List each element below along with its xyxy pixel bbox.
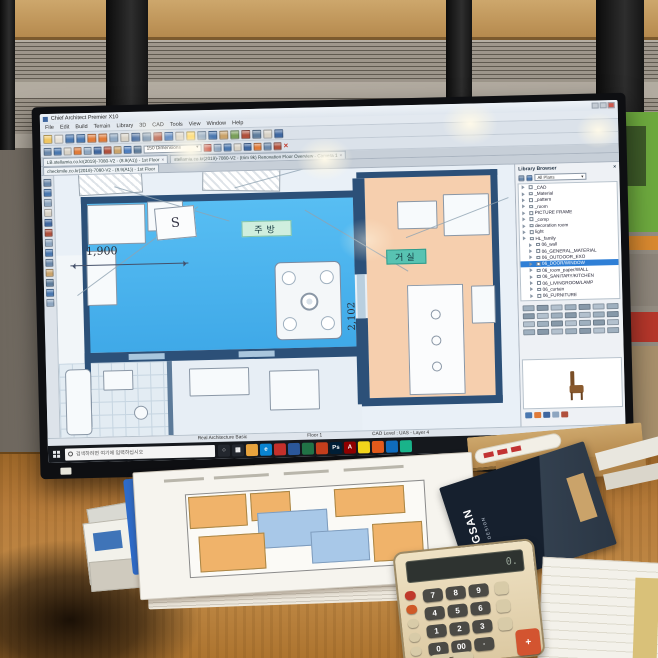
calc-digit-key[interactable]: 3 (472, 619, 493, 634)
toolbar-icon[interactable] (153, 132, 162, 141)
library-item-label: light (535, 229, 544, 234)
taskbar-app-icon[interactable] (288, 442, 300, 454)
calc-plus-key[interactable]: + (515, 628, 542, 656)
taskbar-icons: ○▦ePsA (218, 440, 412, 457)
menu-item[interactable]: File (45, 125, 54, 131)
library-grid-icon[interactable] (607, 327, 619, 333)
library-item-label: _pattern (534, 197, 551, 202)
menu-item[interactable]: Help (232, 120, 243, 126)
toolbar-icon[interactable] (104, 146, 112, 154)
library-preview-pane (522, 357, 623, 409)
tool-icon[interactable] (45, 249, 53, 257)
library-grid-icon[interactable] (523, 313, 535, 319)
menu-item[interactable]: 3D (139, 123, 146, 129)
menu-item[interactable]: View (189, 121, 201, 127)
wall (352, 178, 366, 274)
expand-arrow-icon[interactable] (522, 192, 527, 196)
taskbar-app-icon[interactable]: A (344, 441, 356, 453)
checkbox[interactable] (536, 249, 540, 253)
library-grid-icon[interactable] (523, 329, 535, 335)
toolbar-icon[interactable] (197, 131, 206, 140)
checkbox[interactable] (529, 211, 533, 215)
expand-arrow-icon[interactable] (522, 198, 527, 202)
calc-digit-key[interactable]: 9 (468, 583, 489, 598)
calculator-keypad: 789456123000· (422, 583, 495, 658)
door-opening (357, 274, 366, 318)
library-icon-grid (518, 300, 623, 359)
taskbar-app-icon[interactable] (372, 440, 384, 452)
library-grid-icon[interactable] (579, 328, 591, 334)
screen: Chief Architect Premier X10 FileEditBuil… (40, 100, 626, 463)
expand-arrow-icon[interactable] (530, 294, 535, 298)
toolbar-icon[interactable] (223, 143, 231, 151)
calc-digit-key[interactable]: 4 (424, 606, 445, 621)
delete-tool-icon[interactable]: × (283, 142, 288, 150)
library-grid-icon[interactable] (523, 321, 535, 327)
library-grid-icon[interactable] (523, 305, 535, 311)
place-setting (320, 270, 334, 284)
start-button[interactable] (51, 449, 62, 460)
library-footer-icon[interactable] (543, 411, 550, 417)
toolbar-icon[interactable] (219, 130, 228, 139)
calc-memory-key[interactable] (409, 632, 421, 642)
library-grid-icon[interactable] (537, 329, 549, 335)
toolbar-icon[interactable] (273, 142, 281, 150)
kitchen-room-label: 주방 (241, 220, 291, 237)
expand-arrow-icon[interactable] (523, 224, 528, 228)
window-opening (239, 350, 275, 357)
tool-icon[interactable] (43, 179, 51, 187)
library-grid-icon[interactable] (565, 328, 577, 334)
yellow-notepad (633, 578, 658, 658)
windows-logo-icon (53, 451, 60, 458)
library-grid-icon[interactable] (565, 320, 577, 326)
toolbar-icon[interactable] (120, 132, 129, 141)
calc-memory-key[interactable] (407, 618, 419, 628)
library-tree: _CAD _Material (518, 181, 621, 301)
checkbox[interactable] (530, 237, 534, 241)
checkbox[interactable] (529, 186, 533, 190)
status-floor: Floor 1 (307, 433, 322, 438)
library-item-label: 06_OUTDOOR_EXO (542, 254, 586, 260)
expand-arrow-icon[interactable] (523, 230, 528, 234)
print-text-line (214, 473, 269, 479)
checkbox[interactable] (529, 205, 533, 209)
calc-op-key[interactable] (498, 617, 513, 631)
s-marker: S (154, 205, 197, 241)
library-grid-icon[interactable] (537, 313, 549, 319)
cabinet (87, 204, 146, 245)
expand-arrow-icon[interactable] (530, 275, 535, 279)
monitor: Chief Architect Premier X10 FileEditBuil… (32, 93, 635, 479)
toolbar-icon[interactable] (64, 147, 72, 155)
tool-icon[interactable] (45, 259, 53, 267)
toolbar-icon[interactable] (84, 146, 92, 154)
toolbar-icon[interactable] (208, 130, 217, 139)
toolbar-icon[interactable] (54, 134, 63, 143)
tool-icon[interactable] (46, 299, 54, 307)
mini-room (188, 494, 248, 529)
app-icon (43, 116, 48, 121)
window-opening (129, 353, 165, 360)
library-item-label: 06_curtain (543, 286, 565, 292)
app-glyph: ▦ (235, 446, 241, 453)
toolbar-icon[interactable] (213, 143, 221, 151)
wall-stripe-band (0, 42, 658, 82)
taskbar-app-icon[interactable]: ○ (218, 444, 230, 456)
library-tool-icon[interactable] (526, 175, 532, 181)
wood-shelf (0, 0, 658, 40)
toolbar-icon[interactable] (263, 142, 271, 150)
toolbar-icon[interactable] (142, 132, 151, 141)
app-glyph: A (348, 444, 352, 450)
library-footer-icon[interactable] (561, 411, 568, 417)
library-browser-panel: Library Browser × All Plans▾ (514, 162, 625, 426)
library-item-label: decoration room (535, 222, 568, 228)
toolbar-icon[interactable] (76, 134, 85, 143)
app-glyph: Ps (332, 444, 339, 450)
tool-icon[interactable] (45, 229, 53, 237)
toolbar-icon[interactable] (65, 134, 74, 143)
library-grid-icon[interactable] (607, 319, 619, 325)
speaker-circle (432, 361, 442, 371)
speaker-circle (431, 309, 441, 319)
toolbar-icon[interactable] (252, 129, 261, 138)
chair-thumbnail (581, 392, 583, 400)
maximize-button[interactable] (600, 102, 607, 108)
library-grid-icon[interactable] (593, 327, 605, 333)
toolbar-icon[interactable] (186, 131, 195, 140)
toolbar-icon[interactable] (241, 129, 250, 138)
library-grid-icon[interactable] (593, 303, 605, 309)
toolbar-icon[interactable] (74, 147, 82, 155)
library-grid-icon[interactable] (551, 312, 563, 318)
library-grid-icon[interactable] (593, 319, 605, 325)
toolbar-icon[interactable] (114, 146, 122, 154)
tool-icon[interactable] (45, 239, 53, 247)
app-glyph: e (264, 446, 267, 452)
checkbox[interactable] (537, 281, 541, 285)
taskbar-app-icon[interactable] (274, 443, 286, 455)
calc-op-key[interactable] (496, 599, 511, 613)
tool-icon[interactable] (44, 219, 52, 227)
expand-arrow-icon[interactable] (522, 211, 527, 215)
menu-item[interactable]: Library (116, 123, 133, 129)
library-grid-icon[interactable] (579, 304, 591, 310)
mini-hall (310, 528, 370, 563)
library-footer-icon[interactable] (552, 411, 559, 417)
av-cabinet (407, 284, 466, 395)
chevron-down-icon: ▾ (581, 173, 583, 179)
library-tree-item[interactable]: 06_FURNITURE (521, 291, 619, 300)
taskbar-app-icon[interactable] (316, 442, 328, 454)
tool-icon[interactable] (44, 199, 52, 207)
speaker-circle (431, 335, 441, 345)
library-grid-icon[interactable] (579, 312, 591, 318)
calc-red-key[interactable] (404, 591, 416, 601)
floorplan-canvas[interactable]: S 주방 거실 1,900 2,102 (54, 165, 520, 438)
calc-digit-key[interactable]: 5 (447, 603, 468, 618)
library-item-label: _room (535, 204, 548, 209)
tool-icon[interactable] (46, 279, 54, 287)
width-dimension: 1,900 (86, 244, 118, 258)
cabinet (189, 367, 250, 396)
dining-table (274, 261, 342, 341)
menu-item[interactable]: Tools (170, 122, 183, 128)
calc-digit-key[interactable]: 8 (445, 585, 466, 600)
calc-digit-key[interactable]: 2 (449, 621, 470, 636)
table-center (300, 292, 318, 310)
mini-room (334, 485, 406, 517)
taskbar-app-icon[interactable]: ▦ (232, 444, 244, 456)
library-grid-icon[interactable] (579, 320, 591, 326)
calc-digit-key[interactable]: 1 (426, 624, 447, 639)
tool-icon[interactable] (46, 289, 54, 297)
window-controls (592, 102, 615, 109)
toolbar-icon[interactable] (263, 129, 272, 138)
expand-arrow-icon[interactable] (530, 268, 535, 272)
bathtub (65, 369, 93, 436)
toolbar-icon[interactable] (109, 133, 118, 142)
toolbar-group (203, 142, 281, 152)
dimension-dropdown-label: 150 Dimensions (147, 146, 182, 152)
cabinet (397, 200, 438, 229)
library-footer-icon[interactable] (534, 411, 541, 417)
menu-item[interactable]: Terrain (94, 123, 111, 129)
checkbox[interactable] (537, 268, 541, 272)
toolbar-icon[interactable] (243, 142, 251, 150)
close-icon[interactable]: × (613, 164, 616, 170)
menu-item[interactable]: Edit (60, 124, 70, 130)
search-placeholder: 검색하려면 여기에 입력하십시오 (76, 449, 143, 458)
search-icon (68, 451, 73, 456)
place-setting (282, 271, 296, 285)
tool-icon[interactable] (45, 269, 53, 277)
minimize-button[interactable] (592, 102, 599, 108)
print-text-line (164, 477, 204, 482)
chair-thumbnail (571, 392, 573, 400)
photo-scene: Chief Architect Premier X10 FileEditBuil… (0, 0, 658, 658)
expand-arrow-icon[interactable] (529, 262, 534, 266)
main-area: S 주방 거실 1,900 2,102 Library Browser × (41, 162, 625, 438)
wall (356, 318, 370, 404)
print-text-line (284, 470, 329, 476)
mini-room (198, 533, 266, 573)
library-grid-icon[interactable] (607, 303, 619, 309)
place-setting (321, 316, 335, 330)
cabinet (443, 193, 490, 236)
toolbar-icon[interactable] (43, 134, 52, 143)
toolbar-icon[interactable] (164, 131, 173, 140)
library-filter-dropdown[interactable]: All Plans▾ (534, 173, 586, 181)
window-title: Chief Architect Premier X10 (51, 114, 119, 122)
livingroom-label-text: 거실 (395, 250, 418, 264)
library-grid-icon[interactable] (537, 321, 549, 327)
close-button[interactable] (608, 102, 615, 108)
library-grid-icon[interactable] (551, 304, 563, 310)
library-tool-icon[interactable] (518, 175, 524, 181)
checkbox[interactable] (536, 243, 540, 247)
checkbox[interactable] (529, 192, 533, 196)
bezel-sticker (60, 467, 71, 474)
toolbar-icon[interactable] (54, 147, 62, 155)
toolbar-icon[interactable] (253, 142, 261, 150)
library-item-label: 06_DOOR/WINDOW (542, 260, 585, 266)
calc-digit-key[interactable]: · (474, 637, 495, 652)
checkbox[interactable] (529, 198, 533, 202)
expand-arrow-icon[interactable] (529, 243, 534, 247)
calculator-display: 0. (405, 549, 525, 583)
library-title: Library Browser (518, 165, 556, 172)
height-dimension: 2,102 (346, 302, 358, 331)
library-grid-icon[interactable] (593, 311, 605, 317)
checkbox[interactable] (537, 288, 541, 292)
print-text-line (344, 465, 404, 472)
library-item-label: _comp (535, 216, 549, 221)
checkbox[interactable] (536, 262, 540, 266)
menu-item[interactable]: Window (206, 121, 226, 127)
toolbar-icon[interactable] (175, 131, 184, 140)
app-glyph: ○ (222, 447, 226, 453)
toolbar-group (44, 145, 142, 155)
expand-arrow-icon[interactable] (522, 217, 527, 221)
library-item-label: 06_wall (541, 242, 557, 247)
tab-close-icon[interactable]: × (161, 157, 164, 162)
checkbox[interactable] (537, 275, 541, 279)
tab-close-icon[interactable]: × (339, 153, 342, 158)
expand-arrow-icon[interactable] (530, 288, 535, 292)
cabinet (471, 285, 496, 324)
expand-arrow-icon[interactable] (529, 256, 534, 260)
library-filter-label: All Plans (537, 175, 554, 180)
cabinet (269, 369, 320, 410)
library-item-label: 06_FURNITURE (543, 292, 577, 298)
place-setting (283, 317, 297, 331)
toolbar-icon[interactable] (94, 146, 102, 154)
tool-icon[interactable] (44, 189, 52, 197)
taskbar-app-icon[interactable]: Ps (330, 441, 342, 453)
taskbar-app-icon[interactable] (400, 440, 412, 452)
calc-memory-key[interactable] (410, 646, 422, 656)
toolbar-icon[interactable] (134, 145, 142, 153)
toolbar-icon[interactable] (44, 147, 52, 155)
sink (103, 370, 133, 391)
dimension-dropdown[interactable]: 150 Dimensions▾ (144, 144, 202, 153)
expand-arrow-icon[interactable] (529, 249, 534, 253)
taskbar-app-icon[interactable]: e (260, 443, 272, 455)
calc-op-key[interactable] (494, 581, 509, 595)
calculator[interactable]: 0. 789456123000· = + (392, 538, 546, 658)
toolbar-icon[interactable] (124, 145, 132, 153)
checkbox[interactable] (530, 224, 534, 228)
taskbar-app-icon[interactable] (358, 441, 370, 453)
shelf-post (0, 0, 15, 150)
toolbar-icon[interactable] (98, 133, 107, 142)
library-item-label: _Material (534, 191, 553, 196)
expand-arrow-icon[interactable] (522, 205, 527, 209)
toolbar-icon[interactable] (233, 143, 241, 151)
checkbox[interactable] (530, 230, 534, 234)
taskbar-app-icon[interactable] (386, 440, 398, 452)
expand-arrow-icon[interactable] (530, 281, 535, 285)
calc-digit-key[interactable]: 6 (470, 601, 491, 616)
library-grid-icon[interactable] (551, 320, 563, 326)
checkbox[interactable] (529, 217, 533, 221)
toolbar-icon[interactable] (131, 132, 140, 141)
tool-icon[interactable] (44, 209, 52, 217)
library-footer-icon[interactable] (525, 412, 532, 418)
toolbar-icon[interactable] (203, 143, 211, 151)
book-bookmark (566, 473, 597, 522)
library-grid-icon[interactable] (565, 304, 577, 310)
chevron-down-icon: ▾ (196, 145, 199, 150)
expand-arrow-icon[interactable] (522, 185, 527, 189)
menu-item[interactable]: Build (75, 124, 87, 130)
expand-arrow-icon[interactable] (523, 237, 528, 241)
taskbar-app-icon[interactable] (302, 442, 314, 454)
menu-item[interactable]: CAD (152, 122, 164, 128)
kitchen-label-text: 주방 (254, 222, 279, 236)
calc-digit-key[interactable]: 7 (422, 588, 443, 603)
taskbar-search[interactable]: 검색하려면 여기에 입력하십시오 (65, 444, 215, 460)
photo-on-paper (93, 530, 123, 551)
toolbar-icon[interactable] (87, 133, 96, 142)
toolbar-icon[interactable] (274, 129, 283, 138)
checkbox[interactable] (537, 294, 541, 298)
taskbar-app-icon[interactable] (246, 443, 258, 455)
library-grid-icon[interactable] (551, 328, 563, 334)
library-item-label: HL_family (535, 235, 556, 240)
library-item-label: _CAD (534, 184, 546, 189)
checkbox[interactable] (536, 256, 540, 260)
library-grid-icon[interactable] (607, 311, 619, 317)
livingroom-room-label: 거실 (386, 249, 426, 265)
toolbar-icon[interactable] (230, 130, 239, 139)
calc-red-key[interactable] (406, 604, 418, 614)
library-grid-icon[interactable] (537, 305, 549, 311)
s-marker-label: S (170, 215, 180, 231)
library-item-label: PICTURE FRAME (535, 209, 573, 215)
library-footer-icons (521, 408, 625, 420)
library-grid-icon[interactable] (565, 312, 577, 318)
